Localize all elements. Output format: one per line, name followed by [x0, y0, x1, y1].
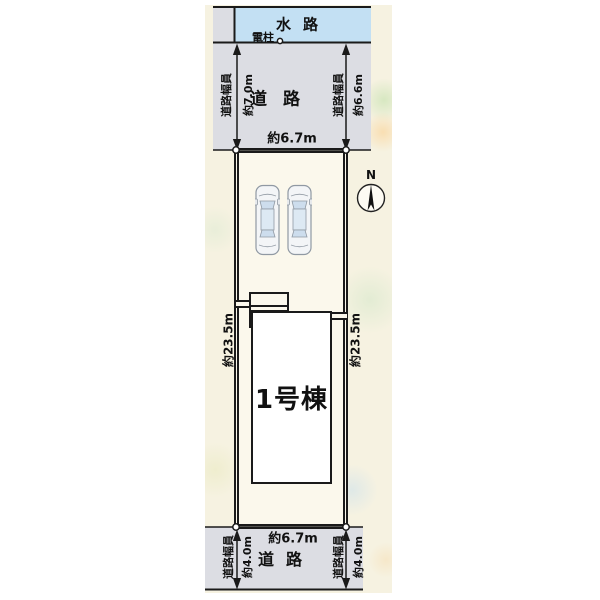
car-icon [255, 184, 280, 256]
site-plan-canvas: 1号棟 [0, 0, 600, 600]
utility-pole-label: 電柱 [252, 29, 274, 45]
car-icon [287, 184, 312, 256]
road-bottom-width-caption-left: 道路幅員 [220, 535, 236, 579]
road-bottom-width-value-right: 約4.0m [350, 536, 366, 578]
lot-depth-left: 約23.5m [220, 313, 237, 367]
watercolor-blob [368, 542, 392, 578]
building-label: 1号棟 [255, 379, 328, 416]
road-top-label: 道路 [250, 85, 316, 110]
road-bottom-width-value-left: 約4.0m [239, 536, 255, 578]
building-entrance-step [249, 292, 289, 312]
lot-frontage-bottom: 約6.7m [268, 528, 318, 547]
building-outline: 1号棟 [251, 311, 332, 484]
road-top-width-caption-left: 道路幅員 [218, 73, 234, 117]
road-bottom-width-caption-right: 道路幅員 [330, 535, 346, 579]
lot-frontage-top: 約6.7m [267, 128, 317, 147]
waterway-label: 水路 [276, 14, 330, 35]
road-bottom-label: 道路 [258, 546, 314, 570]
road-top-width-caption-right: 道路幅員 [330, 73, 346, 117]
road-top-width-value-right: 約6.6m [350, 74, 366, 116]
lot-depth-right: 約23.5m [347, 313, 364, 367]
compass-north-label: N [366, 168, 376, 182]
lot-connector-right [330, 312, 347, 320]
